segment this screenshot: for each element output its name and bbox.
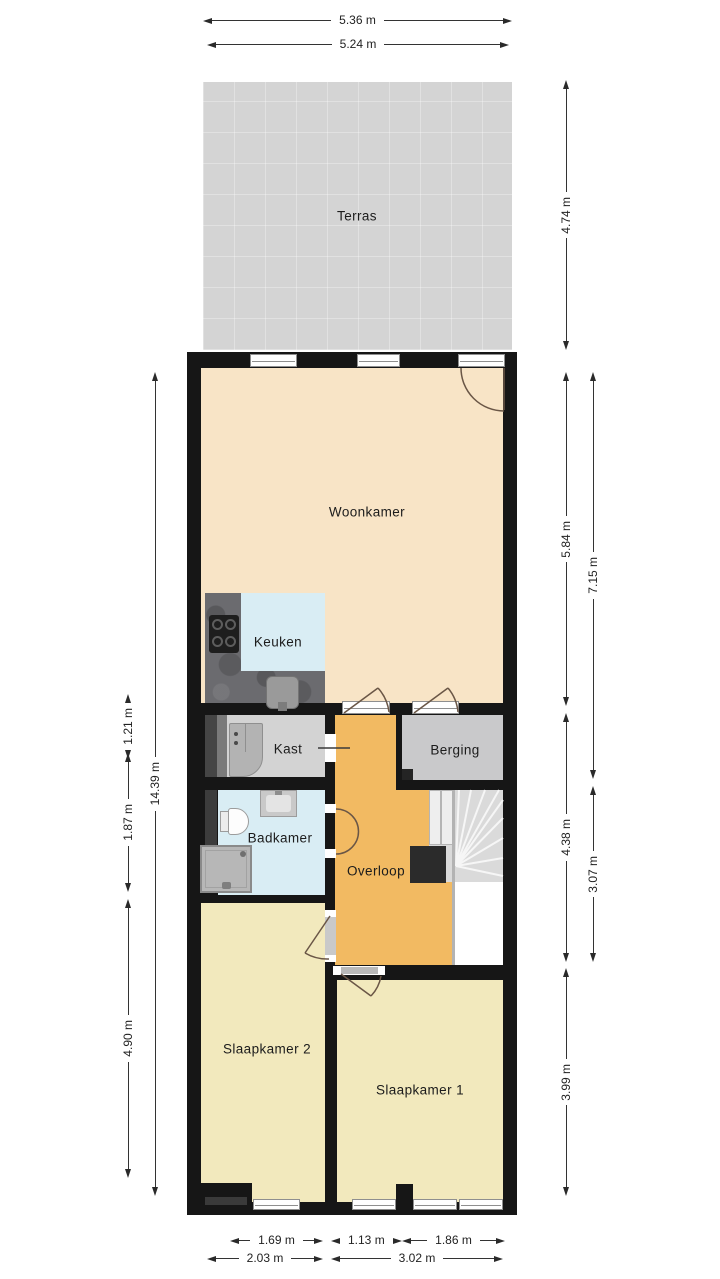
- label-overloop: Overloop: [347, 864, 405, 879]
- dim-slaapkamer2-width: 2.03 m: [207, 1252, 323, 1265]
- floorplan: Terras Woonkamer Keuken Kast Berging Bad…: [0, 0, 720, 1279]
- dim-woonkamer-berging-height: 7.15 m: [586, 372, 600, 779]
- dim-terras-inner-width: 5.24 m: [207, 38, 509, 51]
- dim-bottom-middle-width: 1.13 m: [331, 1234, 393, 1247]
- dim-badkamer-height: 1.87 m: [121, 753, 135, 892]
- label-woonkamer: Woonkamer: [329, 505, 405, 520]
- label-badkamer: Badkamer: [248, 831, 313, 846]
- dim-slaapkamer1-height: 3.99 m: [559, 968, 573, 1196]
- label-keuken: Keuken: [254, 635, 302, 650]
- dim-kast-height: 1.21 m: [121, 694, 135, 747]
- dim-slaapkamer2-height: 4.90 m: [121, 899, 135, 1178]
- label-berging: Berging: [430, 743, 479, 758]
- dim-stairs-zone-height: 3.07 m: [586, 786, 600, 962]
- dim-middle-zone-height: 4.38 m: [559, 713, 573, 962]
- dim-terras-height: 4.74 m: [559, 80, 573, 350]
- label-kast: Kast: [274, 742, 303, 757]
- label-slaapkamer1: Slaapkamer 1: [376, 1083, 464, 1098]
- dim-slaapkamer2-window-width: 1.69 m: [230, 1234, 323, 1247]
- dim-building-height: 14.39 m: [148, 372, 162, 1196]
- doors-and-stairs-overlay: [0, 0, 720, 1279]
- label-slaapkamer2: Slaapkamer 2: [223, 1042, 311, 1057]
- label-terras: Terras: [337, 209, 377, 224]
- dim-terras-outer-width: 5.36 m: [203, 14, 512, 27]
- dim-bottom-right-width: 1.86 m: [402, 1234, 505, 1247]
- dim-slaapkamer1-width: 3.02 m: [331, 1252, 503, 1265]
- dim-woonkamer-height: 5.84 m: [559, 372, 573, 706]
